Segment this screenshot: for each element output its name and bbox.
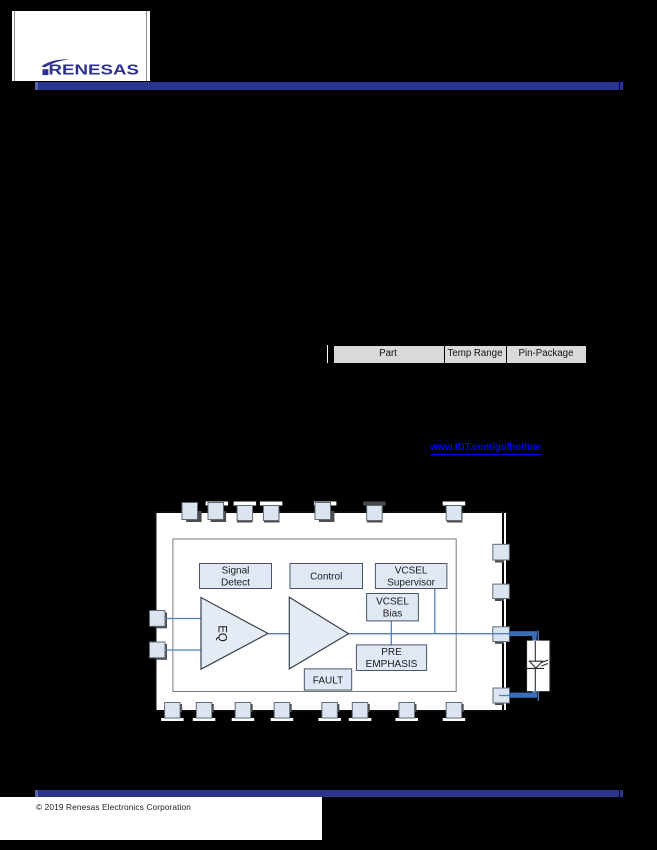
svg-text:Signal: Signal: [222, 566, 250, 577]
svg-text:Supervisor: Supervisor: [387, 578, 435, 589]
svg-text:VCSEL: VCSEL: [395, 566, 428, 577]
svg-text:FAULT: FAULT: [313, 676, 343, 687]
svg-text:RENESAS: RENESAS: [49, 63, 140, 78]
svg-text:Control: Control: [310, 572, 342, 583]
svg-text:EMPHASIS: EMPHASIS: [366, 659, 418, 670]
svg-text:Detect: Detect: [221, 578, 250, 589]
svg-text:PRE: PRE: [381, 647, 402, 658]
svg-text:VCSEL: VCSEL: [376, 597, 409, 608]
svg-text:Bias: Bias: [383, 609, 402, 620]
svg-text:EQ: EQ: [215, 625, 227, 642]
